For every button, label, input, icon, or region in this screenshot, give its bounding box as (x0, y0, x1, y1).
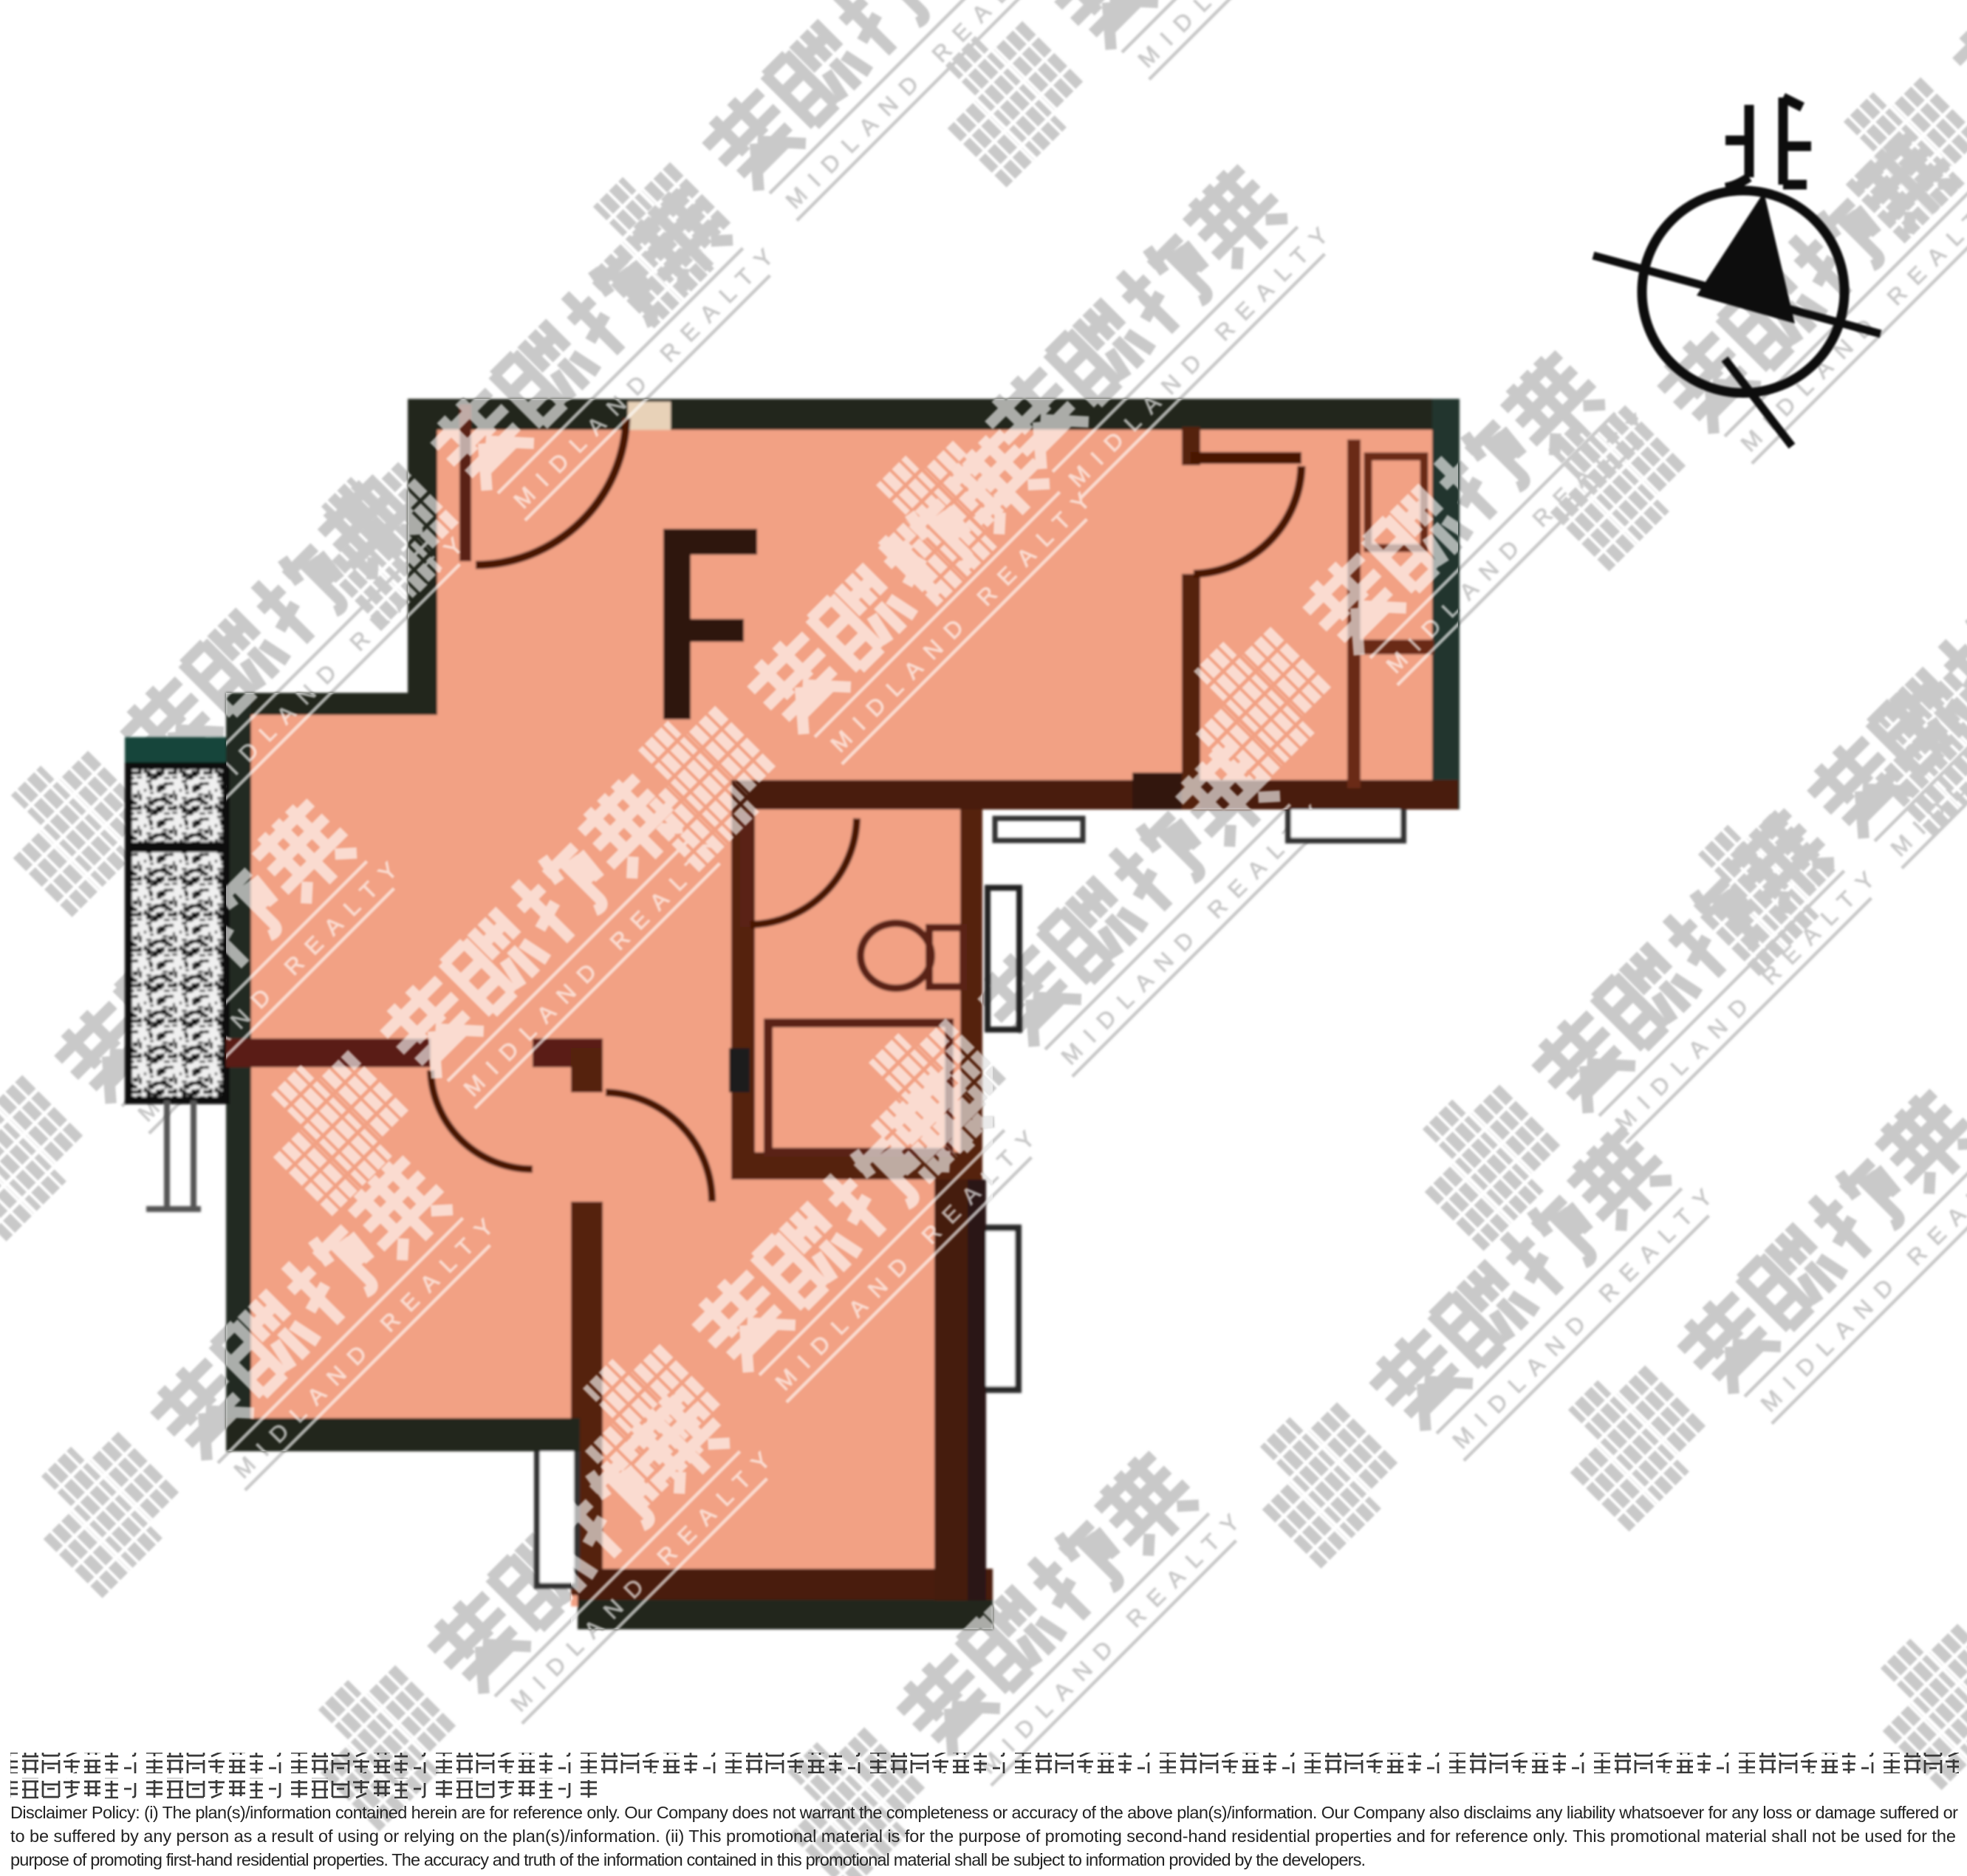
svg-text:Disclaimer Policy: (i) The pla: Disclaimer Policy: (i) The plan(s)/infor… (10, 1803, 1958, 1822)
svg-text:purpose of promoting first-han: purpose of promoting first-hand resident… (10, 1850, 1366, 1869)
svg-text:to be suffered by any person a: to be suffered by any person as a result… (10, 1827, 1956, 1846)
